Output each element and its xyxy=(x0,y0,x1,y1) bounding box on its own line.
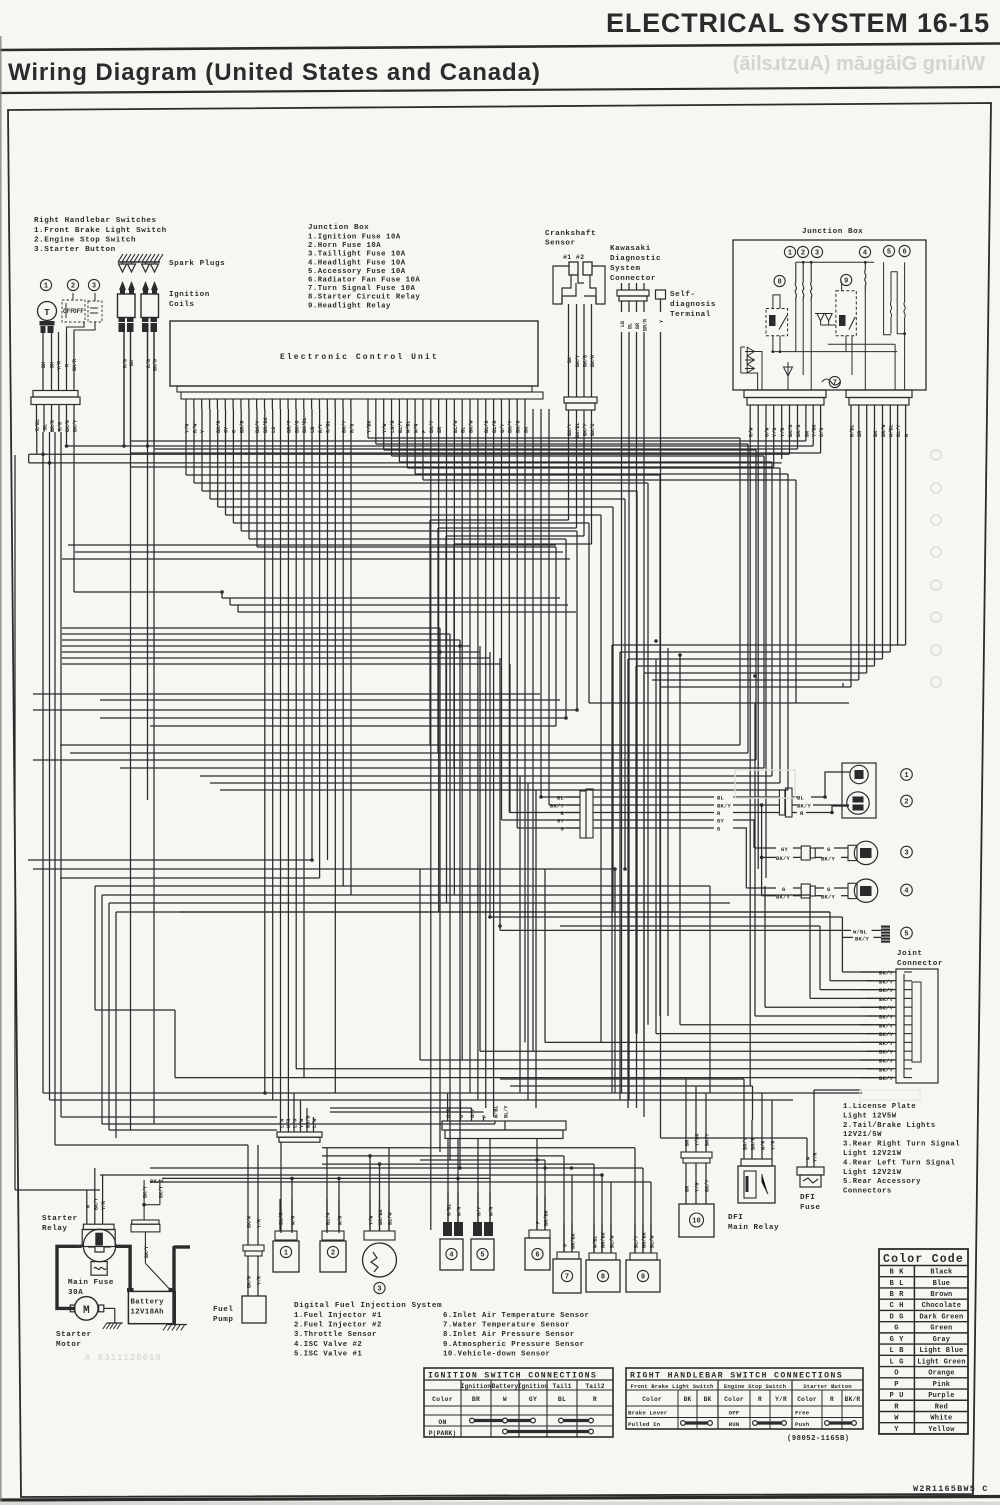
svg-text:Y/G: Y/G xyxy=(772,428,778,437)
svg-text:BK/BL: BK/BL xyxy=(302,417,308,433)
svg-text:BK: BK xyxy=(567,357,573,363)
svg-text:BL: BL xyxy=(628,323,634,329)
svg-text:W: W xyxy=(503,1396,507,1403)
svg-text:Tail2: Tail2 xyxy=(585,1383,604,1390)
svg-text:BK/R: BK/R xyxy=(590,355,596,367)
svg-text:3.Rear Right Turn Signal: 3.Rear Right Turn Signal xyxy=(843,1141,960,1149)
svg-text:BK/G: BK/G xyxy=(516,421,522,433)
svg-text:2: 2 xyxy=(71,283,75,291)
svg-text:W/R: W/R xyxy=(286,1118,292,1128)
svg-text:5.ISC Valve #1: 5.ISC Valve #1 xyxy=(294,1350,362,1358)
svg-text:LG: LG xyxy=(271,427,277,433)
svg-text:Push: Push xyxy=(795,1421,810,1428)
svg-text:Gray: Gray xyxy=(933,1336,951,1344)
svg-text:BK: BK xyxy=(873,430,879,437)
svg-text:BR/BK: BR/BK xyxy=(571,1233,577,1249)
svg-text:3.Throttle Sensor: 3.Throttle Sensor xyxy=(294,1331,377,1339)
svg-text:P U: P U xyxy=(889,1392,903,1400)
svg-text:BL/Y: BL/Y xyxy=(398,420,404,433)
svg-text:R/G: R/G xyxy=(58,422,64,431)
svg-text:BK/B: BK/B xyxy=(583,355,589,367)
svg-text:BK/Y: BK/Y xyxy=(879,1014,894,1021)
svg-text:GY: GY xyxy=(557,818,565,825)
svg-text:5: 5 xyxy=(887,249,891,257)
svg-text:Front Brake Light Switch: Front Brake Light Switch xyxy=(631,1383,715,1390)
svg-text:W/R: W/R xyxy=(337,1215,343,1225)
svg-text:Pump: Pump xyxy=(213,1316,233,1324)
svg-text:Pulled In: Pulled In xyxy=(628,1421,661,1428)
svg-text:B R: B R xyxy=(889,1291,904,1299)
svg-text:4: 4 xyxy=(449,1252,453,1260)
svg-text:3: 3 xyxy=(377,1286,381,1294)
svg-text:L/G: L/G xyxy=(292,1119,298,1128)
svg-text:BK/R: BK/R xyxy=(845,1396,861,1403)
svg-text:G: G xyxy=(827,846,831,853)
svg-text:G/BL: G/BL xyxy=(326,421,332,433)
svg-text:Y/W: Y/W xyxy=(368,1215,374,1225)
svg-text:O: O xyxy=(459,1115,465,1118)
svg-text:BK/Y: BK/Y xyxy=(879,1066,894,1073)
svg-text:(98052-1165B): (98052-1165B) xyxy=(787,1435,850,1443)
svg-text:BL/Y: BL/Y xyxy=(896,424,902,437)
svg-text:BK/Y: BK/Y xyxy=(144,1246,150,1258)
svg-text:Spark Plugs: Spark Plugs xyxy=(169,260,225,268)
svg-text:Fuel: Fuel xyxy=(213,1306,233,1314)
svg-text:1.Ignition Fuse 10A: 1.Ignition Fuse 10A xyxy=(308,234,401,242)
svg-text:R: R xyxy=(65,364,71,367)
svg-text:BK/Y: BK/Y xyxy=(508,420,514,433)
svg-text:7.Turn Signal Fuse 10A: 7.Turn Signal Fuse 10A xyxy=(308,285,415,293)
svg-text:Color: Color xyxy=(432,1396,453,1403)
svg-text:Light Green: Light Green xyxy=(917,1358,965,1366)
svg-text:BK/Y: BK/Y xyxy=(879,1005,894,1012)
svg-text:G/Y: G/Y xyxy=(476,1206,482,1216)
svg-text:7.Water Temperature Sensor: 7.Water Temperature Sensor xyxy=(443,1322,570,1330)
svg-text:BK/R: BK/R xyxy=(788,424,794,437)
svg-text:BL/W: BL/W xyxy=(453,420,459,433)
svg-text:O: O xyxy=(232,430,238,433)
svg-text:Y/R: Y/R xyxy=(770,1140,776,1150)
svg-text:Blue: Blue xyxy=(933,1280,951,1288)
svg-text:D G: D G xyxy=(889,1313,903,1321)
svg-text:Wiring Diagram (United States: Wiring Diagram (United States and Canada… xyxy=(8,59,541,86)
svg-text:BK/Y: BK/Y xyxy=(704,1179,710,1192)
svg-text:L B: L B xyxy=(889,1347,904,1355)
svg-text:G/BL: G/BL xyxy=(446,1106,452,1118)
svg-text:Starter Button: Starter Button xyxy=(803,1383,852,1390)
svg-text:B K: B K xyxy=(889,1269,904,1277)
svg-text:BR: BR xyxy=(857,430,863,437)
svg-text:Black: Black xyxy=(930,1269,952,1277)
svg-text:12V21/5W: 12V21/5W xyxy=(843,1131,882,1139)
svg-text:1.License Plate: 1.License Plate xyxy=(843,1103,916,1111)
svg-text:Y/R: Y/R xyxy=(257,1219,263,1228)
svg-text:Light Blue: Light Blue xyxy=(919,1347,963,1355)
svg-text:BR/R: BR/R xyxy=(796,424,802,437)
svg-text:BL: BL xyxy=(797,795,805,802)
svg-text:G: G xyxy=(782,886,786,893)
svg-text:BR/Y: BR/Y xyxy=(742,1137,748,1150)
svg-text:BR/R: BR/R xyxy=(643,319,649,331)
svg-text:1: 1 xyxy=(44,283,48,291)
svg-text:Y: Y xyxy=(200,429,206,433)
svg-text:BK/Y: BK/Y xyxy=(879,1031,894,1038)
svg-text:2.Engine Stop Switch: 2.Engine Stop Switch xyxy=(34,237,136,245)
svg-text:W/R: W/R xyxy=(488,1206,494,1216)
svg-text:diagnosis: diagnosis xyxy=(670,301,716,309)
svg-text:BK/Y: BK/Y xyxy=(879,1049,894,1056)
svg-text:Free: Free xyxy=(795,1410,810,1417)
svg-text:Y/G: Y/G xyxy=(694,1183,700,1192)
svg-text:10.Vehicle-down Sensor: 10.Vehicle-down Sensor xyxy=(443,1350,550,1358)
svg-text:Purple: Purple xyxy=(928,1392,954,1400)
svg-text:Y/R: Y/R xyxy=(101,1201,107,1210)
svg-text:BK/Y: BK/Y xyxy=(158,1186,164,1198)
svg-text:BK: BK xyxy=(684,1396,692,1403)
svg-text:O: O xyxy=(563,1244,569,1247)
svg-text:W/R: W/R xyxy=(456,1206,462,1216)
svg-text:BK/R: BK/R xyxy=(72,359,78,371)
svg-text:6: 6 xyxy=(902,249,906,257)
svg-text:1: 1 xyxy=(904,772,908,780)
svg-text:BK/Y: BK/Y xyxy=(879,1075,894,1082)
svg-text:Connector: Connector xyxy=(897,960,943,968)
svg-text:Y/BK: Y/BK xyxy=(694,1133,700,1146)
svg-text:BL/Y: BL/Y xyxy=(503,1105,509,1118)
svg-text:G/BL: G/BL xyxy=(446,1204,452,1216)
svg-text:W/BL: W/BL xyxy=(493,1106,499,1118)
svg-text:5.Rear Accessory: 5.Rear Accessory xyxy=(843,1178,921,1186)
svg-text:R: R xyxy=(560,810,564,817)
svg-text:BK/Y: BK/Y xyxy=(879,987,894,994)
svg-text:O/G: O/G xyxy=(819,428,825,437)
svg-text:9.Atmospheric Pressure Sensor: 9.Atmospheric Pressure Sensor xyxy=(443,1341,585,1349)
svg-text:Tail1: Tail1 xyxy=(552,1383,571,1390)
svg-text:Green: Green xyxy=(930,1325,952,1333)
svg-text:BL/R: BL/R xyxy=(492,420,498,433)
svg-text:L G: L G xyxy=(889,1358,903,1366)
svg-text:BR/T: BR/T xyxy=(286,421,292,433)
svg-text:G/Y: G/Y xyxy=(500,423,506,433)
svg-text:Chocolate: Chocolate xyxy=(922,1302,962,1310)
svg-text:BR/BK: BR/BK xyxy=(544,1210,550,1226)
svg-text:BK/Y: BK/Y xyxy=(879,1040,894,1047)
svg-text:ELECTRICAL SYSTEM 16-15: ELECTRICAL SYSTEM 16-15 xyxy=(606,8,990,38)
svg-text:R/W: R/W xyxy=(749,427,755,437)
svg-text:Digital Fuel Injection System: Digital Fuel Injection System xyxy=(294,1302,442,1310)
svg-text:Y/W: Y/W xyxy=(382,423,388,433)
svg-text:BL: BL xyxy=(717,795,725,802)
svg-text:Color: Color xyxy=(797,1396,817,1403)
svg-text:BR/W: BR/W xyxy=(881,424,887,437)
svg-text:P: P xyxy=(536,1221,542,1224)
svg-text:BR/BK: BR/BK xyxy=(378,1209,384,1225)
svg-text:2: 2 xyxy=(904,799,908,807)
svg-text:Ignition: Ignition xyxy=(169,291,210,299)
svg-text:2: 2 xyxy=(801,250,805,258)
svg-text:8: 8 xyxy=(601,1274,605,1282)
svg-text:BR/BK: BR/BK xyxy=(641,1232,647,1248)
svg-text:6: 6 xyxy=(535,1252,539,1260)
svg-text:Light 12V5W: Light 12V5W xyxy=(843,1112,897,1120)
svg-text:5: 5 xyxy=(904,931,908,939)
svg-text:(āilsɹtzuA) māɹgāiG gniɹiW: (āilsɹtzuA) māɹgāiG gniɹiW xyxy=(733,53,985,75)
svg-text:BL/W: BL/W xyxy=(649,1235,655,1248)
svg-text:Joint: Joint xyxy=(897,950,923,958)
svg-text:Light 12V21W: Light 12V21W xyxy=(843,1169,902,1177)
svg-text:Y/R: Y/R xyxy=(780,427,786,437)
svg-text:BK: BK xyxy=(523,426,529,433)
svg-text:OFF: OFF xyxy=(729,1410,740,1417)
svg-text:W2R1165BW5 C: W2R1165BW5 C xyxy=(913,1484,989,1494)
svg-text:G/Y: G/Y xyxy=(470,1108,476,1118)
svg-text:3.Starter Button: 3.Starter Button xyxy=(34,246,116,254)
svg-text:L/W: L/W xyxy=(312,1118,318,1128)
svg-text:BR: BR xyxy=(635,323,641,329)
svg-text:4.Headlight Fuse 10A: 4.Headlight Fuse 10A xyxy=(308,259,406,267)
svg-text:Brake Lever: Brake Lever xyxy=(628,1410,668,1417)
svg-text:White: White xyxy=(930,1415,952,1423)
svg-text:R: R xyxy=(800,810,804,817)
svg-text:Y/R: Y/R xyxy=(775,1396,787,1403)
svg-text:R: R xyxy=(593,1396,597,1403)
svg-text:8.Starter Circuit Relay: 8.Starter Circuit Relay xyxy=(308,294,420,302)
svg-text:B L: B L xyxy=(889,1280,903,1288)
svg-text:BR/BK: BR/BK xyxy=(263,417,269,433)
svg-text:BK/Y: BK/Y xyxy=(879,1058,894,1065)
svg-text:Fuse: Fuse xyxy=(800,1204,820,1212)
svg-text:Light 12V21W: Light 12V21W xyxy=(843,1150,902,1158)
svg-text:OFF: OFF xyxy=(73,308,84,315)
svg-text:4.ISC Valve #2: 4.ISC Valve #2 xyxy=(294,1341,362,1349)
svg-text:Main Fuse: Main Fuse xyxy=(68,1279,114,1287)
svg-text:7: 7 xyxy=(565,1274,569,1282)
svg-text:Red: Red xyxy=(935,1403,948,1411)
svg-text:BL/W: BL/W xyxy=(387,1212,393,1225)
svg-text:Battery: Battery xyxy=(492,1383,519,1390)
svg-text:M: M xyxy=(83,1305,90,1317)
svg-text:BK/Y: BK/Y xyxy=(255,420,261,433)
svg-text:BK: BK xyxy=(804,430,810,437)
svg-text:W/BL: W/BL xyxy=(406,421,412,433)
svg-text:W: W xyxy=(894,1415,899,1423)
svg-text:BK/Y: BK/Y xyxy=(341,420,347,433)
svg-text:R/Y: R/Y xyxy=(318,423,324,433)
svg-text:5.Accessory Fuse 10A: 5.Accessory Fuse 10A xyxy=(308,268,406,276)
svg-text:BR: BR xyxy=(437,426,443,433)
svg-text:5: 5 xyxy=(480,1252,484,1260)
svg-text:9: 9 xyxy=(844,278,848,286)
svg-text:BK/Y: BK/Y xyxy=(855,935,870,942)
svg-text:Motor: Motor xyxy=(56,1341,82,1349)
svg-text:R/G: R/G xyxy=(349,424,355,433)
svg-text:3.Taillight Fuse 10A: 3.Taillight Fuse 10A xyxy=(308,251,406,259)
svg-text:1: 1 xyxy=(788,250,792,258)
svg-text:Y/R: Y/R xyxy=(57,361,63,370)
svg-text:LG/R: LG/R xyxy=(390,420,396,433)
svg-text:Y/G: Y/G xyxy=(184,424,190,433)
svg-text:BR/BK: BR/BK xyxy=(600,1232,606,1248)
svg-text:Brown: Brown xyxy=(930,1291,952,1299)
svg-text:BK/Y: BK/Y xyxy=(550,803,565,810)
svg-text:W/R: W/R xyxy=(290,1215,296,1225)
svg-text:BL/G: BL/G xyxy=(484,421,490,433)
svg-text:Right Handlebar Switches: Right Handlebar Switches xyxy=(34,217,157,225)
svg-text:System: System xyxy=(610,265,641,273)
svg-text:Yellow: Yellow xyxy=(928,1426,955,1434)
svg-text:10: 10 xyxy=(692,1218,700,1226)
svg-text:2.Tail/Brake Lights: 2.Tail/Brake Lights xyxy=(843,1122,936,1130)
svg-text:G: G xyxy=(560,826,564,833)
svg-text:2.Fuel Injector #2: 2.Fuel Injector #2 xyxy=(294,1322,382,1330)
svg-text:4: 4 xyxy=(904,888,908,896)
svg-text:BK/W: BK/W xyxy=(468,420,474,433)
svg-text:6.Radiator Fan Fuse 10A: 6.Radiator Fan Fuse 10A xyxy=(308,277,420,285)
svg-text:BK/Y: BK/Y xyxy=(575,355,581,367)
svg-text:Sensor: Sensor xyxy=(545,240,576,248)
svg-text:BK/R: BK/R xyxy=(65,420,71,432)
svg-text:P: P xyxy=(482,1115,488,1118)
svg-text:BK/Y: BK/Y xyxy=(797,803,812,810)
svg-text:Crankshaft: Crankshaft xyxy=(545,230,596,238)
svg-text:BK/Y: BK/Y xyxy=(717,803,732,810)
svg-text:3: 3 xyxy=(815,250,819,258)
svg-text:Battery: Battery xyxy=(131,1299,165,1307)
svg-text:BL/G: BL/G xyxy=(325,1213,331,1225)
svg-text:BL/Y: BL/Y xyxy=(633,1235,639,1248)
svg-text:BK/R: BK/R xyxy=(216,420,222,433)
svg-text:4.Rear Left Turn Signal: 4.Rear Left Turn Signal xyxy=(843,1159,955,1167)
svg-text:Ignition: Ignition xyxy=(518,1383,549,1390)
svg-text:G: G xyxy=(717,826,721,833)
svg-text:ON: ON xyxy=(438,1419,446,1426)
svg-text:Color: Color xyxy=(642,1396,662,1403)
svg-text:BK/Y: BK/Y xyxy=(879,970,894,977)
svg-text:BK: BK xyxy=(704,1396,712,1403)
svg-text:A 8311128010: A 8311128010 xyxy=(85,1353,162,1363)
svg-text:Y/BK: Y/BK xyxy=(812,424,818,437)
svg-text:BK: BK xyxy=(41,362,47,368)
svg-text:W: W xyxy=(904,433,910,437)
svg-text:R: R xyxy=(830,1396,834,1403)
svg-text:9: 9 xyxy=(641,1274,645,1282)
svg-text:BK/Y: BK/Y xyxy=(821,894,836,901)
svg-text:R/BL: R/BL xyxy=(35,419,41,431)
svg-text:Y: Y xyxy=(894,1426,899,1434)
svg-text:R: R xyxy=(717,810,721,817)
svg-text:Connectors: Connectors xyxy=(843,1188,892,1196)
svg-text:BK: BK xyxy=(50,362,56,368)
svg-text:Main Relay: Main Relay xyxy=(728,1224,779,1232)
svg-text:8: 8 xyxy=(777,279,781,287)
svg-text:BK/W: BK/W xyxy=(247,1276,253,1288)
svg-text:Y/W: Y/W xyxy=(299,1118,305,1128)
svg-text:BK/Y: BK/Y xyxy=(879,978,894,985)
svg-text:Y: Y xyxy=(659,320,665,323)
svg-text:BK/Y: BK/Y xyxy=(704,1133,710,1146)
svg-text:G Y: G Y xyxy=(889,1336,904,1344)
svg-text:Y/R: Y/R xyxy=(813,1152,819,1162)
svg-text:BK/Y: BK/Y xyxy=(879,996,894,1003)
svg-text:Starter: Starter xyxy=(42,1215,78,1223)
svg-text:W/BL: W/BL xyxy=(592,1236,598,1248)
svg-text:GY: GY xyxy=(224,426,230,433)
svg-text:W/R: W/R xyxy=(760,1140,766,1150)
svg-text:T: T xyxy=(44,308,50,318)
svg-text:Self-: Self- xyxy=(670,291,696,299)
svg-text:G: G xyxy=(894,1325,899,1333)
svg-text:G: G xyxy=(827,886,831,893)
svg-text:Relay: Relay xyxy=(42,1225,68,1233)
svg-text:C H: C H xyxy=(889,1302,903,1310)
svg-text:W/BL: W/BL xyxy=(889,425,895,437)
svg-text:8.Inlet Air Pressure Sensor: 8.Inlet Air Pressure Sensor xyxy=(443,1331,575,1339)
svg-text:P: P xyxy=(894,1381,899,1389)
svg-text:RIGHT HANDLEBAR SWITCH CONNECT: RIGHT HANDLEBAR SWITCH CONNECTIONS xyxy=(630,1372,843,1381)
svg-text:30A: 30A xyxy=(68,1289,83,1297)
svg-text:9.Headlight Relay: 9.Headlight Relay xyxy=(308,302,391,310)
svg-text:BK/Y: BK/Y xyxy=(143,1186,149,1198)
svg-text:Terminal: Terminal xyxy=(670,311,711,319)
svg-text:BK/Y: BK/Y xyxy=(93,1198,99,1210)
svg-text:2.Horn Fuse 10A: 2.Horn Fuse 10A xyxy=(308,242,381,250)
svg-text:W/BL: W/BL xyxy=(853,928,868,935)
svg-text:Pink: Pink xyxy=(933,1381,951,1389)
svg-text:BL: BL xyxy=(461,427,467,433)
svg-text:IGNITION SWITCH CONNECTIONS: IGNITION SWITCH CONNECTIONS xyxy=(428,1372,597,1381)
svg-text:P(PARK): P(PARK) xyxy=(429,1430,457,1437)
svg-text:Orange: Orange xyxy=(928,1370,954,1378)
svg-text:R: R xyxy=(894,1403,899,1411)
svg-text:BK/Y: BK/Y xyxy=(821,856,836,863)
svg-text:6.Inlet Air Temperature Sensor: 6.Inlet Air Temperature Sensor xyxy=(443,1312,589,1320)
svg-text:GY: GY xyxy=(717,818,725,825)
svg-text:LB: LB xyxy=(310,427,316,433)
svg-text:Coils: Coils xyxy=(169,301,195,309)
svg-text:Junction Box: Junction Box xyxy=(308,224,369,232)
svg-text:BR: BR xyxy=(684,1185,690,1192)
svg-text:GY: GY xyxy=(529,1396,537,1403)
svg-text:Engine Stop Switch: Engine Stop Switch xyxy=(724,1383,787,1390)
svg-text:Kawasaki: Kawasaki xyxy=(610,245,651,253)
svg-text:R/W: R/W xyxy=(192,423,198,433)
svg-text:P: P xyxy=(421,430,427,433)
svg-text:1: 1 xyxy=(284,1250,288,1258)
svg-text:Electronic Control Unit: Electronic Control Unit xyxy=(280,353,439,362)
svg-text:L/R: L/R xyxy=(279,1118,285,1128)
svg-text:BL: BL xyxy=(557,795,565,802)
svg-text:G/W: G/W xyxy=(764,427,770,437)
svg-text:W/N: W/N xyxy=(414,424,420,433)
svg-text:R: R xyxy=(758,1396,762,1403)
svg-text:LB: LB xyxy=(620,321,626,327)
svg-text:Dark Green: Dark Green xyxy=(919,1313,963,1321)
svg-text:Diagnostic: Diagnostic xyxy=(610,255,661,263)
svg-text:DFI: DFI xyxy=(728,1214,743,1222)
svg-text:BL: BL xyxy=(558,1396,566,1403)
svg-text:BK/O: BK/O xyxy=(294,421,300,433)
svg-text:2: 2 xyxy=(331,1250,335,1258)
svg-text:12V18Ah: 12V18Ah xyxy=(131,1309,164,1317)
svg-text:BR: BR xyxy=(684,1139,690,1146)
svg-text:Ignition: Ignition xyxy=(461,1383,492,1390)
svg-text:BK/Y: BK/Y xyxy=(429,420,435,433)
svg-text:1.Front Brake Light Switch: 1.Front Brake Light Switch xyxy=(34,227,167,235)
svg-text:BK/W: BK/W xyxy=(247,1216,253,1228)
svg-text:BK/Y: BK/Y xyxy=(776,855,791,862)
svg-text:BL: BL xyxy=(43,424,49,430)
svg-text:BK/Y: BK/Y xyxy=(73,420,79,432)
